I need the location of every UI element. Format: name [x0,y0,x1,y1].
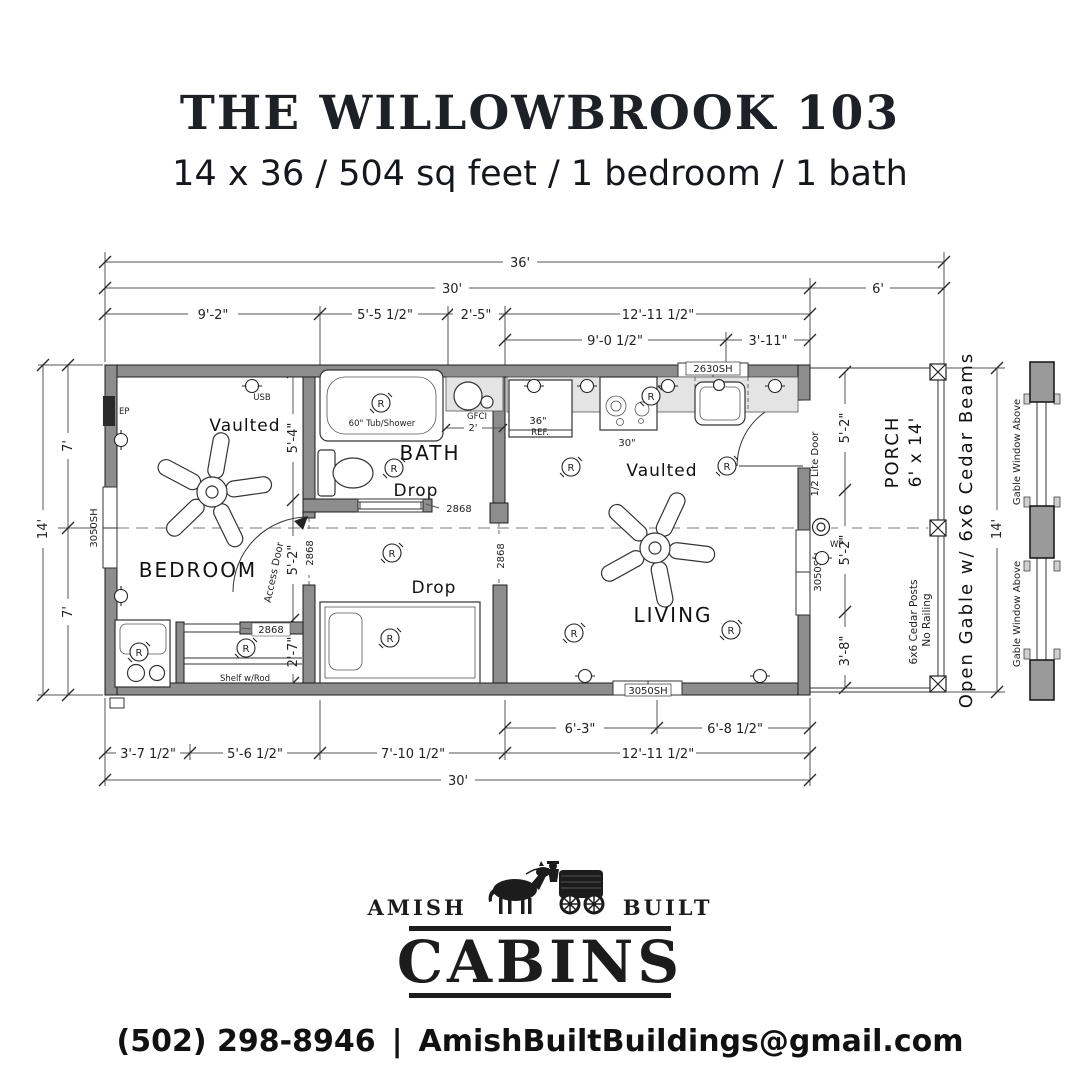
access-door-label: Access Door [263,540,287,603]
gfci-label: GFCI [467,412,487,422]
gable-posts [1030,362,1054,700]
light-symbol-r: R [568,463,575,474]
living-label: LIVING [633,603,712,627]
porch: PORCH 6' x 14' 6x6 Cedar Posts No Railin… [810,352,977,708]
outlet-symbol [242,380,262,393]
usb-label: USB [253,393,271,403]
vaulted-label-bedroom: Vaulted [209,416,280,436]
no-railing-note: No Railing [921,593,933,646]
light-symbol-r: R [648,392,655,403]
dim-left-bottom: 7' [61,606,76,618]
fridge-label: REF. [531,428,549,438]
window-left-3050sh: 3050SH [89,487,117,568]
dim-overall-width: 36' [510,256,530,271]
ep-label: EP [119,407,130,417]
window-label: 3050SH [89,508,100,547]
dimensions-bottom: 6'-3" 6'-8 1/2" 3'-7 1/2" 5'-6 1/2" 7'-1… [99,698,816,789]
dim-left-top: 7' [61,440,76,452]
gable-window-label: Gable Window Above [1012,561,1023,667]
wp-label: WP [830,540,844,550]
dim-bottom-1: 3'-7 1/2" [120,747,176,762]
window-right-3050sh: 3050SH [796,530,824,615]
door-size-label: 2868 [258,625,283,636]
porch-label: PORCH [882,416,903,489]
closet-interior: Shelf w/Rod [184,658,302,684]
contact-info: (502) 298-8946|AmishBuiltBuildings@gmail… [0,1024,1080,1059]
door-size-label: 2868 [305,540,316,565]
footing-block [110,698,124,708]
gable-window-label: Gable Window Above [1012,399,1023,505]
page-subtitle: 14 x 36 / 504 sq feet / 1 bedroom / 1 ba… [0,154,1080,194]
dim-right-inner-1: 5'-2" [838,413,853,444]
shelf-label: Shelf w/Rod [220,674,270,684]
dim-left-total: 14' [36,519,51,539]
bedroom-label: BEDROOM [139,558,257,582]
door-size-label: 2868 [446,504,471,515]
dim-mid-inner-1: 5'-4" [286,423,301,454]
dim-right-inner-3: 3'-8" [838,636,853,667]
window-label: 2630SH [693,364,732,375]
logo-word-amish: AMISH [368,895,467,924]
toilet [318,450,373,496]
ceiling-fan-icon [599,490,716,608]
dim-bottom-sub-1: 6'-3" [565,722,596,737]
dim-top-1: 9'-2" [198,308,229,323]
drop-label-hall: Drop [412,578,457,598]
sink-width-label: 2' [468,423,477,434]
dim-right-total: 14' [990,519,1005,539]
fridge-size-label: 36" [529,416,546,427]
vaulted-label-living: Vaulted [626,461,697,481]
gable-elevation: Gable Window Above Gable Window Above [1012,362,1060,700]
light-symbol-r: R [389,549,396,560]
contact-phone: (502) 298-8946 [117,1024,376,1059]
open-gable-note: Open Gable w/ 6x6 Cedar Beams [956,352,977,708]
kitchen-sink [695,380,745,426]
contact-divider: | [392,1024,403,1059]
logo-word-cabins: CABINS [0,933,1080,991]
dim-mid-inner-3: 2'-7" [286,637,301,668]
light-symbol-r: R [136,648,143,659]
page: THE WILLOWBROOK 103 14 x 36 / 504 sq fee… [0,0,1080,1080]
light-symbol-r: R [378,399,385,410]
logo-word-built: BUILT [623,895,713,924]
floor-plan: 36' 30' 6' 9'-2" 5'-5 1/2" 2'-5" 12'-11 … [0,240,1080,810]
dim-top-sub-2: 3'-11" [748,334,787,349]
light-symbol-r: R [391,464,398,475]
dim-top-3: 2'-5" [461,308,492,323]
light-symbol-r: R [724,462,731,473]
dim-top-2: 5'-5 1/2" [357,308,413,323]
bath-label: BATH [399,441,460,465]
company-logo: AMISH [0,852,1080,1000]
outlet-symbol [750,670,770,683]
cedar-posts-note: 6x6 Cedar Posts [908,580,920,665]
dim-bottom-4: 12'-11 1/2" [622,747,694,762]
light-symbol-r: R [387,634,394,645]
contact-email: AmishBuiltBuildings@gmail.com [419,1024,964,1059]
page-title: THE WILLOWBROOK 103 [0,86,1080,141]
light-symbol-r: R [243,644,250,655]
dim-mid-inner-2: 5'-2" [286,545,301,576]
light-symbol-r: R [728,626,735,637]
dim-bottom-2: 5'-6 1/2" [227,747,283,762]
window-bottom-3050sh: 3050SH [613,681,682,697]
window-kitchen-2630sh: 2630SH [678,362,748,377]
dim-main-width: 30' [442,282,462,297]
dim-bottom-3: 7'-10 1/2" [381,747,445,762]
bathroom-fixtures: 60" Tub/Shower GFCI 2' [318,370,507,496]
dim-bottom-sub-2: 6'-8 1/2" [707,722,763,737]
bath-pocket-door [360,502,421,509]
range-size-label: 30" [618,438,635,449]
closet-door [184,624,240,632]
entry-door-label: 1/2 Lite Door [810,431,821,497]
dimensions-top: 36' 30' 6' 9'-2" 5'-5 1/2" 2'-5" 12'-11 … [99,252,950,372]
horse-and-buggy-icon [481,854,609,924]
dim-bottom-total: 30' [448,774,468,789]
dim-top-sub-1: 9'-0 1/2" [587,334,643,349]
ceiling-fan-icon [155,432,272,550]
window-label: 3050SH [628,686,667,697]
dim-top-4: 12'-11 1/2" [622,308,694,323]
door-size-label: 2868 [496,543,507,568]
light-symbol-r: R [571,629,578,640]
bed [320,602,480,683]
drop-label-bath: Drop [394,481,439,501]
dimensions-inner-right: 5'-2" 5'-2" 3'-8" [838,366,853,694]
porch-size-label: 6' x 14' [906,417,926,488]
dim-porch-width: 6' [872,282,884,297]
outlet-symbol [575,670,595,683]
tub-label: 60" Tub/Shower [349,419,416,429]
